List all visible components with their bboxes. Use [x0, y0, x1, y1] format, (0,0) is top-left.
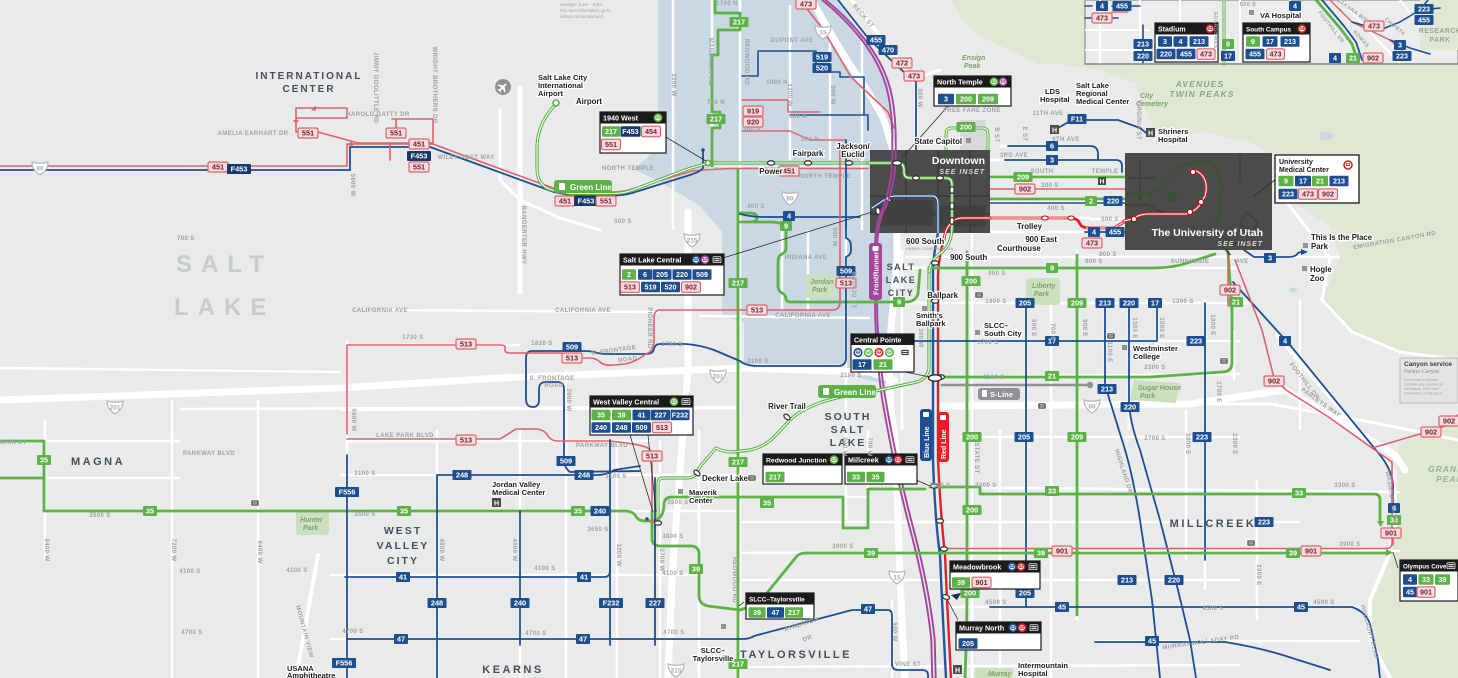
svg-text:7200 W: 7200 W — [170, 538, 176, 561]
svg-text:454: 454 — [645, 127, 657, 136]
svg-text:SUNNYSIDE: SUNNYSIDE — [1171, 259, 1210, 265]
svg-text:University: University — [1279, 159, 1313, 166]
svg-text:800 S: 800 S — [1099, 252, 1117, 258]
svg-text:473: 473 — [800, 0, 812, 9]
svg-text:1300 E: 1300 E — [1131, 317, 1137, 338]
svg-text:200: 200 — [964, 589, 976, 598]
svg-text:227: 227 — [655, 411, 667, 420]
svg-text:451: 451 — [783, 167, 795, 176]
svg-text:Hospital: Hospital — [1158, 135, 1188, 144]
svg-text:F453: F453 — [622, 127, 638, 136]
svg-text:Medical Center: Medical Center — [1076, 97, 1129, 106]
svg-text:Center: Center — [689, 496, 713, 505]
svg-text:SOUTH: SOUTH — [1031, 169, 1054, 175]
svg-text:MANDALAY RD: MANDALAY RD — [707, 38, 713, 87]
svg-text:33: 33 — [1295, 489, 1303, 498]
svg-text:41: 41 — [580, 573, 588, 582]
svg-text:Park: Park — [1311, 242, 1329, 251]
svg-text:901: 901 — [1420, 588, 1432, 597]
svg-text:Courthouse: Courthouse — [997, 244, 1041, 253]
svg-text:South City: South City — [984, 329, 1022, 338]
svg-text:4100 S: 4100 S — [179, 569, 200, 575]
svg-text:SEE INSET: SEE INSET — [1217, 241, 1263, 248]
svg-text:600 N: 600 N — [789, 114, 807, 120]
svg-text:Decker Lake: Decker Lake — [702, 474, 749, 483]
svg-text:1940 West: 1940 West — [603, 114, 639, 123]
svg-text:45: 45 — [1406, 588, 1414, 597]
svg-text:4: 4 — [1293, 2, 1297, 11]
svg-text:2300 E: 2300 E — [1231, 433, 1237, 454]
svg-text:4700 S: 4700 S — [525, 631, 546, 637]
svg-text:902: 902 — [1367, 54, 1379, 63]
svg-text:2300 S: 2300 S — [1144, 365, 1165, 371]
svg-text:21: 21 — [1316, 177, 1324, 186]
svg-text:BANGERTER HWY: BANGERTER HWY — [520, 206, 526, 265]
svg-text:901: 901 — [1305, 547, 1317, 556]
svg-text:SLCC–Taylorsville: SLCC–Taylorsville — [749, 597, 805, 604]
svg-text:39: 39 — [957, 578, 965, 587]
svg-text:GRAND: GRAND — [1428, 464, 1458, 474]
svg-text:473: 473 — [1200, 50, 1212, 59]
svg-text:223: 223 — [1282, 190, 1294, 199]
svg-text:45: 45 — [1297, 603, 1305, 612]
svg-text:11TH AVE: 11TH AVE — [1033, 111, 1064, 117]
svg-text:H: H — [1100, 179, 1105, 186]
svg-text:200: 200 — [960, 123, 972, 132]
svg-text:Ensign: Ensign — [962, 55, 985, 62]
svg-text:H: H — [955, 668, 960, 675]
svg-text:35: 35 — [400, 507, 408, 516]
svg-text:1900 E: 1900 E — [1209, 314, 1215, 335]
svg-text:21: 21 — [1048, 372, 1056, 381]
svg-text:473: 473 — [908, 72, 920, 81]
svg-text:9: 9 — [1251, 37, 1255, 46]
svg-text:4: 4 — [1333, 54, 1337, 63]
svg-text:220: 220 — [1168, 576, 1180, 585]
svg-text:Green Line: Green Line — [834, 388, 876, 397]
svg-text:ROAD: ROAD — [544, 383, 564, 389]
svg-text:9: 9 — [1050, 264, 1054, 273]
svg-text:E ST: E ST — [1021, 127, 1027, 142]
svg-text:TAYLORSVILLE: TAYLORSVILLE — [740, 649, 852, 661]
svg-text:4500 S: 4500 S — [1202, 606, 1223, 612]
svg-text:CALIFORNIA AVE: CALIFORNIA AVE — [352, 308, 408, 314]
svg-text:455: 455 — [1116, 2, 1128, 11]
svg-text:Downtown: Downtown — [932, 155, 985, 167]
svg-text:9: 9 — [784, 222, 788, 231]
svg-text:H: H — [494, 501, 499, 508]
svg-text:220: 220 — [1107, 197, 1119, 206]
svg-text:519: 519 — [645, 283, 657, 292]
svg-text:Red Line: Red Line — [941, 429, 948, 459]
svg-text:205: 205 — [1018, 433, 1030, 442]
svg-text:VALLEY: VALLEY — [377, 540, 430, 552]
svg-text:33: 33 — [1422, 575, 1430, 584]
svg-text:21: 21 — [879, 360, 887, 369]
svg-text:901: 901 — [976, 578, 988, 587]
svg-text:900 W: 900 W — [831, 227, 837, 246]
svg-text:240: 240 — [595, 423, 607, 432]
svg-text:1500 E: 1500 E — [1158, 317, 1164, 338]
svg-text:17: 17 — [1299, 177, 1307, 186]
svg-text:451: 451 — [413, 140, 425, 149]
svg-text:17: 17 — [1224, 52, 1232, 61]
svg-text:500 E: 500 E — [1030, 319, 1036, 337]
svg-text:AVENUES: AVENUES — [1175, 79, 1225, 89]
svg-text:213: 213 — [1137, 40, 1149, 49]
svg-text:217: 217 — [769, 473, 781, 482]
svg-text:VA Hospital: VA Hospital — [1260, 11, 1301, 20]
svg-text:City: City — [1140, 93, 1154, 100]
svg-text:INDIANA AVE: INDIANA AVE — [785, 255, 828, 261]
svg-text:35: 35 — [597, 411, 605, 420]
svg-text:39: 39 — [1439, 575, 1447, 584]
svg-text:200: 200 — [965, 277, 977, 286]
svg-text:8400 W: 8400 W — [43, 538, 49, 561]
svg-text:Medical Center: Medical Center — [492, 488, 545, 497]
svg-text:33: 33 — [1048, 487, 1056, 496]
svg-text:248: 248 — [456, 471, 468, 480]
svg-text:240: 240 — [514, 599, 526, 608]
svg-text:PEAK: PEAK — [1436, 474, 1458, 484]
svg-text:information at rideuta.co: information at rideuta.co — [1404, 392, 1443, 396]
svg-text:REDWOOD RD: REDWOOD RD — [743, 39, 749, 86]
svg-text:Trolley: Trolley — [1017, 222, 1043, 231]
svg-text:4000 W: 4000 W — [511, 538, 517, 561]
svg-text:UNDER CONSTRUCTION: UNDER CONSTRUCTION — [906, 247, 954, 251]
svg-text:205: 205 — [962, 639, 974, 648]
svg-text:5600 W: 5600 W — [350, 408, 356, 431]
svg-text:SOUTH: SOUTH — [825, 411, 872, 423]
svg-text:DUPONT AVE: DUPONT AVE — [771, 38, 814, 44]
svg-text:455: 455 — [870, 36, 882, 45]
svg-text:LAKE: LAKE — [830, 437, 867, 449]
svg-text:KEARNS: KEARNS — [482, 664, 543, 676]
svg-text:3600 W: 3600 W — [565, 388, 571, 411]
svg-text:Liberty: Liberty — [1032, 283, 1056, 290]
svg-text:220: 220 — [676, 270, 688, 279]
svg-text:CITY: CITY — [387, 555, 419, 567]
svg-text:240: 240 — [594, 507, 606, 516]
svg-text:PIONEER RD: PIONEER RD — [646, 307, 652, 349]
svg-text:47: 47 — [397, 635, 405, 644]
svg-text:15: 15 — [893, 575, 901, 582]
svg-text:2000 E: 2000 E — [1184, 433, 1190, 454]
svg-text:80: 80 — [1088, 404, 1096, 411]
svg-text:500 S: 500 S — [1240, 2, 1256, 8]
svg-text:513: 513 — [460, 340, 472, 349]
svg-text:4100 S: 4100 S — [662, 571, 683, 577]
svg-text:900 E: 900 E — [1081, 319, 1087, 337]
svg-text:Park: Park — [303, 525, 319, 532]
svg-text:MILLCREEK: MILLCREEK — [1170, 518, 1257, 530]
svg-text:451: 451 — [212, 163, 224, 172]
svg-text:902: 902 — [1268, 377, 1280, 386]
svg-text:SALT: SALT — [176, 251, 273, 278]
svg-text:513: 513 — [624, 283, 636, 292]
svg-text:700 S: 700 S — [177, 236, 195, 242]
svg-text:West Valley Central: West Valley Central — [593, 398, 659, 407]
svg-text:F232: F232 — [672, 411, 688, 420]
svg-text:300 W: 300 W — [917, 328, 923, 347]
svg-text:SALT: SALT — [887, 262, 916, 272]
svg-text:41: 41 — [638, 411, 646, 420]
svg-text:209: 209 — [982, 95, 994, 104]
svg-text:900 East: 900 East — [1025, 235, 1057, 244]
svg-text:Power: Power — [759, 167, 782, 176]
svg-text:600 South: 600 South — [906, 237, 944, 246]
svg-text:1000 N: 1000 N — [766, 80, 788, 86]
svg-text:473: 473 — [1368, 22, 1380, 31]
svg-text:Park: Park — [812, 287, 828, 294]
svg-text:3900 S: 3900 S — [1339, 542, 1360, 548]
svg-text:551: 551 — [600, 197, 612, 206]
svg-text:Medical Center: Medical Center — [1279, 167, 1329, 174]
svg-text:6TH AVE: 6TH AVE — [1052, 137, 1079, 143]
svg-text:3: 3 — [1268, 254, 1272, 263]
svg-text:FrontRunner: FrontRunner — [872, 251, 881, 295]
svg-text:900 South: 900 South — [950, 253, 987, 262]
svg-text:513: 513 — [646, 452, 658, 461]
svg-text:Euclid: Euclid — [841, 150, 865, 159]
svg-text:4: 4 — [1100, 2, 1104, 11]
svg-text:PARK: PARK — [1430, 37, 1451, 44]
svg-text:17: 17 — [1266, 37, 1274, 46]
svg-text:Hogle: Hogle — [1310, 265, 1332, 274]
svg-text:STATE ST: STATE ST — [973, 442, 979, 473]
svg-text:South Campus: South Campus — [1246, 27, 1292, 34]
svg-text:1700 N: 1700 N — [716, 1, 738, 7]
svg-text:519: 519 — [816, 53, 828, 62]
svg-text:VINE ST: VINE ST — [895, 662, 921, 668]
svg-text:2: 2 — [627, 270, 631, 279]
svg-text:Airport: Airport — [538, 89, 564, 98]
svg-text:902: 902 — [1224, 286, 1236, 295]
svg-text:223: 223 — [1196, 433, 1208, 442]
svg-text:513: 513 — [656, 423, 668, 432]
svg-text:209: 209 — [1017, 173, 1029, 182]
svg-text:Millcreek: Millcreek — [848, 456, 879, 465]
svg-text:400 S: 400 S — [1047, 206, 1065, 212]
svg-text:220: 220 — [1137, 52, 1149, 61]
svg-text:513: 513 — [566, 354, 578, 363]
svg-text:PARKWAY BLVD: PARKWAY BLVD — [576, 443, 628, 449]
svg-text:4100 S: 4100 S — [534, 566, 555, 572]
svg-text:1100 E: 1100 E — [1106, 341, 1112, 362]
svg-text:Some trips to Kimball: Some trips to Kimball — [1404, 378, 1438, 382]
svg-text:220: 220 — [1123, 299, 1135, 308]
svg-text:Hospital: Hospital — [1018, 669, 1048, 678]
svg-text:1200 W: 1200 W — [786, 83, 792, 106]
svg-text:3: 3 — [1398, 41, 1402, 50]
svg-text:901: 901 — [1056, 547, 1068, 556]
svg-text:6400 W: 6400 W — [256, 540, 262, 563]
svg-text:700 W: 700 W — [866, 437, 872, 456]
svg-text:213: 213 — [1121, 576, 1133, 585]
svg-text:Sundays: 6 am – 9 pm: Sundays: 6 am – 9 pm — [560, 2, 602, 7]
svg-text:900 W: 900 W — [841, 437, 847, 456]
svg-text:MAGNA: MAGNA — [71, 456, 125, 468]
svg-text:209: 209 — [1071, 299, 1083, 308]
svg-text:4: 4 — [1179, 37, 1183, 46]
svg-text:Amphitheatre: Amphitheatre — [287, 671, 335, 678]
svg-text:248: 248 — [578, 471, 590, 480]
svg-text:JIMMY DOOLITTLE RD: JIMMY DOOLITTLE RD — [372, 52, 378, 124]
svg-text:F232: F232 — [603, 599, 620, 608]
svg-text:205: 205 — [1019, 299, 1031, 308]
svg-text:451: 451 — [559, 197, 571, 206]
svg-text:700 N: 700 N — [707, 100, 725, 106]
svg-text:473: 473 — [1302, 190, 1314, 199]
svg-text:473: 473 — [1096, 14, 1108, 23]
svg-text:215: 215 — [687, 238, 698, 245]
svg-text:500 N: 500 N — [743, 127, 761, 133]
svg-text:17: 17 — [1151, 299, 1159, 308]
svg-text:CITY: CITY — [888, 288, 915, 298]
svg-text:35: 35 — [146, 507, 154, 516]
svg-text:Hospital: Hospital — [1040, 95, 1070, 104]
svg-text:213: 213 — [1284, 37, 1296, 46]
svg-text:3500 S: 3500 S — [667, 500, 688, 506]
svg-text:39: 39 — [692, 565, 700, 574]
svg-text:9: 9 — [897, 298, 901, 307]
svg-text:900 S: 900 S — [1085, 259, 1103, 265]
svg-text:1700 S: 1700 S — [977, 340, 998, 346]
svg-text:CENTER: CENTER — [282, 84, 335, 95]
svg-text:520: 520 — [816, 64, 828, 73]
svg-text:509: 509 — [566, 343, 578, 352]
svg-text:Redwood Junction: Redwood Junction — [766, 458, 827, 465]
svg-text:F453: F453 — [411, 152, 428, 161]
svg-text:223: 223 — [1396, 52, 1408, 61]
svg-text:Zoo: Zoo — [1310, 274, 1325, 283]
svg-text:3500 S: 3500 S — [89, 513, 110, 519]
svg-text:500 S: 500 S — [614, 219, 632, 225]
svg-text:217: 217 — [788, 608, 800, 617]
svg-text:Canyon service: Canyon service — [1404, 361, 1452, 368]
svg-text:2100 S: 2100 S — [840, 373, 861, 379]
svg-text:41: 41 — [399, 573, 407, 582]
svg-text:ski season. Find more: ski season. Find more — [1404, 387, 1439, 391]
svg-text:3RD AVE: 3RD AVE — [1000, 153, 1028, 159]
svg-text:223: 223 — [1258, 518, 1270, 527]
svg-text:AMELIA EARHART DR: AMELIA EARHART DR — [218, 131, 289, 137]
svg-text:902: 902 — [1425, 428, 1437, 437]
svg-text:TEMPLE: TEMPLE — [1092, 169, 1119, 175]
svg-text:Green Line: Green Line — [570, 183, 612, 192]
svg-text:902: 902 — [1322, 190, 1334, 199]
svg-text:3300 S: 3300 S — [1334, 483, 1355, 489]
svg-text:Parleys Canyon: Parleys Canyon — [1404, 369, 1440, 375]
svg-text:4: 4 — [1408, 575, 1412, 584]
svg-text:This Is the Place: This Is the Place — [1311, 233, 1373, 242]
svg-text:47: 47 — [772, 608, 780, 617]
svg-text:Airport: Airport — [576, 97, 602, 106]
svg-text:201: 201 — [110, 405, 121, 412]
svg-text:213: 213 — [1193, 37, 1205, 46]
svg-text:NAVAJO ST: NAVAJO ST — [850, 271, 856, 308]
svg-text:39: 39 — [618, 411, 626, 420]
svg-text:220: 220 — [1160, 50, 1172, 59]
svg-text:6: 6 — [1050, 142, 1054, 151]
svg-text:213: 213 — [1099, 299, 1111, 308]
svg-text:33: 33 — [852, 473, 860, 482]
svg-text:80: 80 — [786, 196, 794, 203]
svg-text:RESEARCH: RESEARCH — [1419, 28, 1458, 35]
svg-text:Meadowbrook: Meadowbrook — [953, 563, 1001, 572]
svg-text:AVE: AVE — [1235, 259, 1248, 265]
svg-text:900 W: 900 W — [829, 85, 835, 104]
svg-text:551: 551 — [302, 129, 314, 138]
svg-text:1730 S: 1730 S — [402, 335, 423, 341]
svg-text:Olympus Cove: Olympus Cove — [1403, 564, 1447, 571]
svg-text:509: 509 — [636, 423, 648, 432]
svg-text:509: 509 — [696, 270, 708, 279]
svg-text:400 S: 400 S — [747, 204, 765, 210]
svg-text:520: 520 — [665, 283, 677, 292]
svg-text:4500 S: 4500 S — [985, 600, 1006, 606]
svg-text:1700 S: 1700 S — [661, 342, 682, 348]
svg-text:State Capitol: State Capitol — [914, 137, 962, 146]
svg-text:45: 45 — [1148, 637, 1156, 646]
svg-text:4800 W: 4800 W — [438, 538, 444, 561]
svg-text:500 S: 500 S — [1101, 217, 1119, 223]
svg-text:213: 213 — [1101, 385, 1113, 394]
svg-text:GUARDSMAN: GUARDSMAN — [1212, 12, 1218, 49]
svg-text:473: 473 — [1270, 50, 1282, 59]
svg-text:CALIFORNIA AVE: CALIFORNIA AVE — [775, 313, 831, 319]
svg-text:9: 9 — [1226, 40, 1230, 49]
svg-text:PARKWAY BLVD: PARKWAY BLVD — [183, 451, 235, 457]
svg-text:Ballpark: Ballpark — [927, 291, 958, 300]
svg-text:3300 S: 3300 S — [975, 483, 996, 489]
svg-text:Taylorsville: Taylorsville — [693, 654, 734, 663]
svg-text:F556: F556 — [336, 659, 353, 668]
svg-text:Murray: Murray — [988, 671, 1012, 678]
svg-text:200 S: 200 S — [1041, 183, 1059, 189]
svg-text:Hunter: Hunter — [300, 517, 324, 524]
svg-text:500 W: 500 W — [891, 622, 897, 641]
svg-text:39: 39 — [1037, 549, 1045, 558]
svg-text:45: 45 — [1058, 603, 1066, 612]
svg-text:Blue Line: Blue Line — [924, 426, 931, 458]
svg-text:WILEY POST WAY: WILEY POST WAY — [437, 155, 494, 161]
svg-text:SALT: SALT — [831, 424, 866, 436]
svg-text:3800 S: 3800 S — [662, 534, 683, 540]
svg-text:902: 902 — [1443, 417, 1455, 426]
svg-text:217: 217 — [605, 127, 617, 136]
svg-text:217: 217 — [733, 18, 745, 27]
svg-text:39: 39 — [1289, 549, 1297, 558]
svg-text:CALIFORNIA AVE: CALIFORNIA AVE — [555, 308, 611, 314]
svg-text:248: 248 — [431, 599, 443, 608]
svg-text:509: 509 — [560, 457, 572, 466]
svg-text:3: 3 — [944, 95, 948, 104]
svg-text:551: 551 — [605, 140, 617, 149]
svg-text:39: 39 — [753, 608, 761, 617]
svg-text:700 E: 700 E — [1049, 323, 1055, 341]
svg-text:River Trail: River Trail — [768, 402, 806, 411]
svg-text:205: 205 — [656, 270, 668, 279]
svg-text:551: 551 — [390, 129, 402, 138]
svg-text:217: 217 — [732, 660, 744, 669]
svg-text:15: 15 — [819, 30, 827, 37]
svg-text:TWIN PEAKS: TWIN PEAKS — [1169, 89, 1234, 99]
svg-text:455: 455 — [1249, 50, 1261, 59]
svg-text:WEST: WEST — [384, 525, 422, 537]
svg-text:Park: Park — [1034, 291, 1050, 298]
svg-text:217: 217 — [732, 279, 744, 288]
